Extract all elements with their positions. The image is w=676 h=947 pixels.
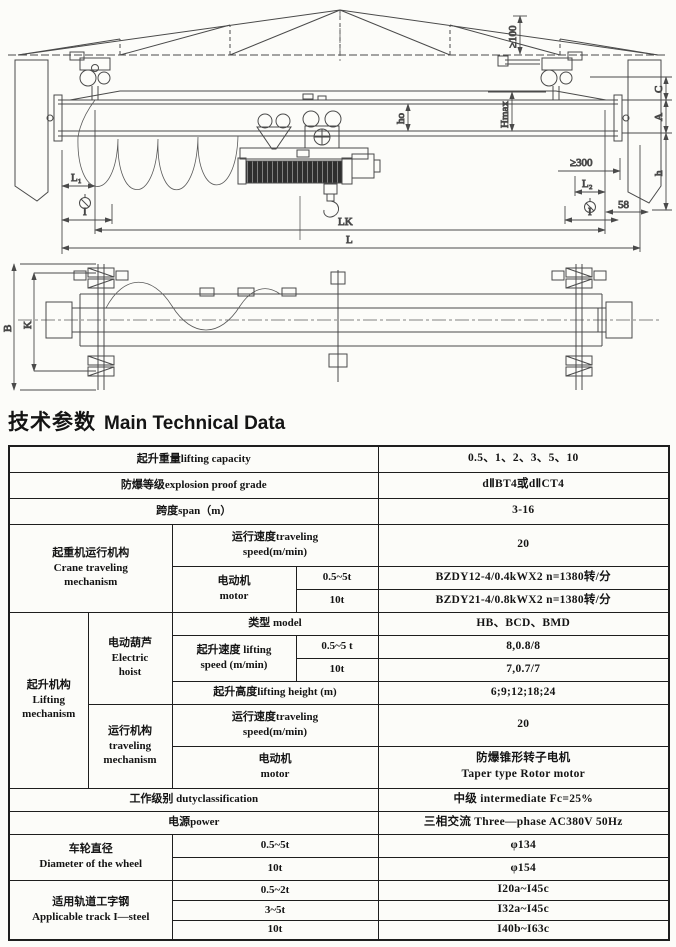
svg-text:≥100: ≥100 (507, 25, 519, 48)
row-crane-traveling-speed: 起重机运行机构 Crane traveling mechanism 运行速度tr… (9, 524, 669, 566)
dim-300: ≥300 (558, 157, 620, 180)
right-end-carriage (498, 52, 582, 100)
dim-l: L (62, 145, 640, 252)
row-label: 防爆等级explosion proof grade (9, 472, 378, 498)
row-value: 三相交流 Three—phase AC380V 50Hz (378, 811, 669, 834)
svg-text:58: 58 (618, 199, 630, 211)
svg-text:Hmax: Hmax (499, 101, 511, 128)
left-end-carriage (70, 52, 110, 100)
center-stub (329, 270, 347, 382)
electric-hoist (238, 148, 380, 184)
condition: 0.5~2t (172, 880, 378, 900)
dim-c: C (590, 77, 672, 100)
svg-text:h: h (653, 170, 665, 176)
dim-l1: L₁ (62, 110, 95, 254)
condition: 0.5~5 t (296, 635, 378, 658)
row-value: I32a~I45c (378, 900, 669, 920)
hook-icon (300, 184, 339, 240)
row-value: 20 (378, 704, 669, 746)
row-explosion-grade: 防爆等级explosion proof grade dⅡBT4或dⅡCT4 (9, 472, 669, 498)
row-value: 20 (378, 524, 669, 566)
row-label: 电源power (9, 811, 378, 834)
condition: 0.5~5t (172, 834, 378, 857)
condition: 10t (172, 920, 378, 940)
row-label: 起升重量lifting capacity (9, 446, 378, 472)
row-value: I20a~I45c (378, 880, 669, 900)
row-value: 中级 intermediate Fc=25% (378, 788, 669, 811)
page-title: 技术参数 Main Technical Data (8, 406, 676, 436)
dim-ho: ho (395, 104, 408, 131)
row-hoist-model: 起升机构 Lifting mechanism 电动葫芦 Electric hoi… (9, 612, 669, 635)
row-value: dⅡBT4或dⅡCT4 (378, 472, 669, 498)
group-wheel-diameter: 车轮直径 Diameter of the wheel (9, 834, 172, 880)
condition: 0.5~5t (296, 566, 378, 589)
svg-text:K: K (22, 321, 34, 329)
row-wheel-1: 车轮直径 Diameter of the wheel 0.5~5t φ134 (9, 834, 669, 857)
row-hoist-traveling-speed: 运行机构 traveling mechanism 运行速度traveling s… (9, 704, 669, 746)
left-wall (15, 60, 48, 201)
row-value: I40b~I63c (378, 920, 669, 940)
crane-front-elevation-drawing: ≥100 (0, 0, 676, 258)
svg-text:A: A (653, 113, 665, 121)
crane-plan-view-drawing: B K (0, 258, 676, 398)
row-value: BZDY12-4/0.4kWX2 n=1380转/分 (378, 566, 669, 589)
dim-k: K (22, 273, 96, 371)
group-electric-hoist: 电动葫芦 Electric hoist (88, 612, 172, 704)
group-crane-traveling: 起重机运行机构 Crane traveling mechanism (9, 524, 172, 612)
row-span: 跨度span（m） 3-16 (9, 498, 669, 524)
row-value: φ134 (378, 834, 669, 857)
row-value: 3-16 (378, 498, 669, 524)
svg-text:≥300: ≥300 (570, 157, 593, 169)
row-value: 防爆锥形转子电机 Taper type Rotor motor (378, 746, 669, 788)
row-value: HB、BCD、BMD (378, 612, 669, 635)
technical-data-table: 起升重量lifting capacity 0.5、1、2、3、5、10 防爆等级… (8, 445, 670, 941)
dim-i-right: I (565, 206, 618, 224)
row-label: 电动机 motor (172, 746, 378, 788)
row-label: 运行速度traveling speed(m/min) (172, 704, 378, 746)
svg-text:C: C (653, 86, 665, 93)
svg-text:L₁: L₁ (71, 172, 82, 184)
row-value: 8,0.8/8 (378, 635, 669, 658)
catalog-page: ≥100 (0, 0, 676, 947)
group-applicable-track: 适用轨道工字钢 Applicable track I—steel (9, 880, 172, 940)
row-label: 跨度span（m） (9, 498, 378, 524)
right-wall (628, 60, 661, 203)
svg-text:I: I (83, 206, 87, 218)
dim-h: h (622, 133, 672, 210)
svg-text:B: B (2, 325, 14, 332)
cable-clamps (200, 288, 296, 296)
label-lift-speed: 起升速度 lifting speed (m/min) (172, 635, 296, 681)
row-label: 起升高度lifting height (m) (172, 681, 378, 704)
label-motor: 电动机 motor (172, 566, 296, 612)
group-hoist-traveling: 运行机构 traveling mechanism (88, 704, 172, 788)
svg-text:L: L (346, 234, 353, 246)
row-value: BZDY21-4/0.8kWX2 n=1380转/分 (378, 589, 669, 612)
condition: 3~5t (172, 900, 378, 920)
row-value: 0.5、1、2、3、5、10 (378, 446, 669, 472)
svg-text:LK: LK (338, 216, 353, 228)
row-duty: 工作级别 dutyclassification 中级 intermediate … (9, 788, 669, 811)
row-lifting-capacity: 起升重量lifting capacity 0.5、1、2、3、5、10 (9, 446, 669, 472)
crane-girder (47, 91, 629, 141)
festoon-cable (78, 100, 238, 190)
condition: 10t (172, 857, 378, 880)
row-track-1: 适用轨道工字钢 Applicable track I—steel 0.5~2t … (9, 880, 669, 900)
row-label: 工作级别 dutyclassification (9, 788, 378, 811)
hoist-trolley (257, 111, 341, 149)
row-value: 6;9;12;18;24 (378, 681, 669, 704)
row-value: 7,0.7/7 (378, 658, 669, 681)
svg-text:ho: ho (395, 113, 407, 125)
row-label: 类型 model (172, 612, 378, 635)
row-label: 运行速度traveling speed(m/min) (172, 524, 378, 566)
dim-hmax: Hmax (488, 92, 546, 131)
title-chinese: 技术参数 (8, 406, 96, 436)
dim-58: 58 (606, 199, 648, 212)
dim-a: A (622, 100, 672, 133)
svg-text:L₂: L₂ (582, 178, 593, 190)
title-english: Main Technical Data (104, 413, 285, 435)
dim-roof-clearance: ≥100 (507, 16, 527, 54)
row-power: 电源power 三相交流 Three—phase AC380V 50Hz (9, 811, 669, 834)
dim-lk: LK (95, 216, 605, 230)
svg-text:I: I (588, 206, 592, 218)
dim-i-left: I (62, 204, 112, 224)
row-value: φ154 (378, 857, 669, 880)
condition: 10t (296, 658, 378, 681)
roof-truss (8, 10, 668, 55)
condition: 10t (296, 589, 378, 612)
group-lifting-mechanism: 起升机构 Lifting mechanism (9, 612, 88, 788)
